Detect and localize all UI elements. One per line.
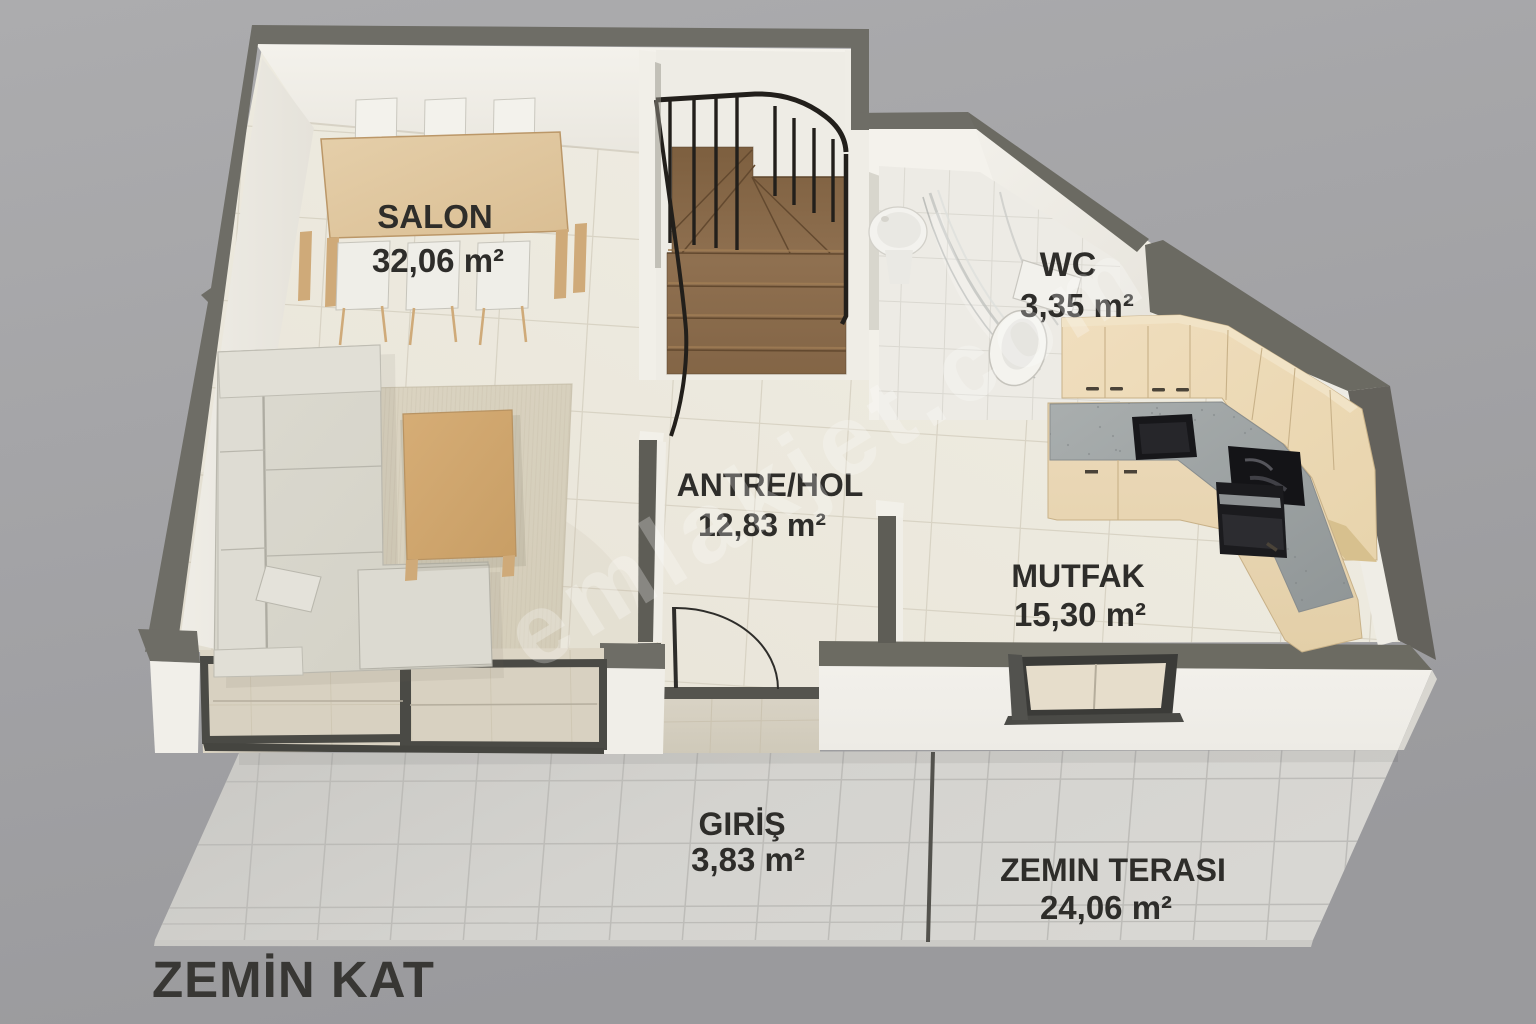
svg-text:MUTFAK: MUTFAK [1011,558,1144,594]
svg-text:SALON: SALON [377,198,493,235]
svg-text:32,06 m²: 32,06 m² [372,242,504,279]
svg-text:ZEMİN KAT: ZEMİN KAT [152,951,435,1008]
svg-text:GIRİŞ: GIRİŞ [698,806,785,842]
svg-text:15,30 m²: 15,30 m² [1014,596,1146,633]
svg-text:3,83 m²: 3,83 m² [691,841,805,878]
svg-text:ZEMIN TERASI: ZEMIN TERASI [1000,852,1226,888]
svg-text:24,06 m²: 24,06 m² [1040,889,1172,926]
